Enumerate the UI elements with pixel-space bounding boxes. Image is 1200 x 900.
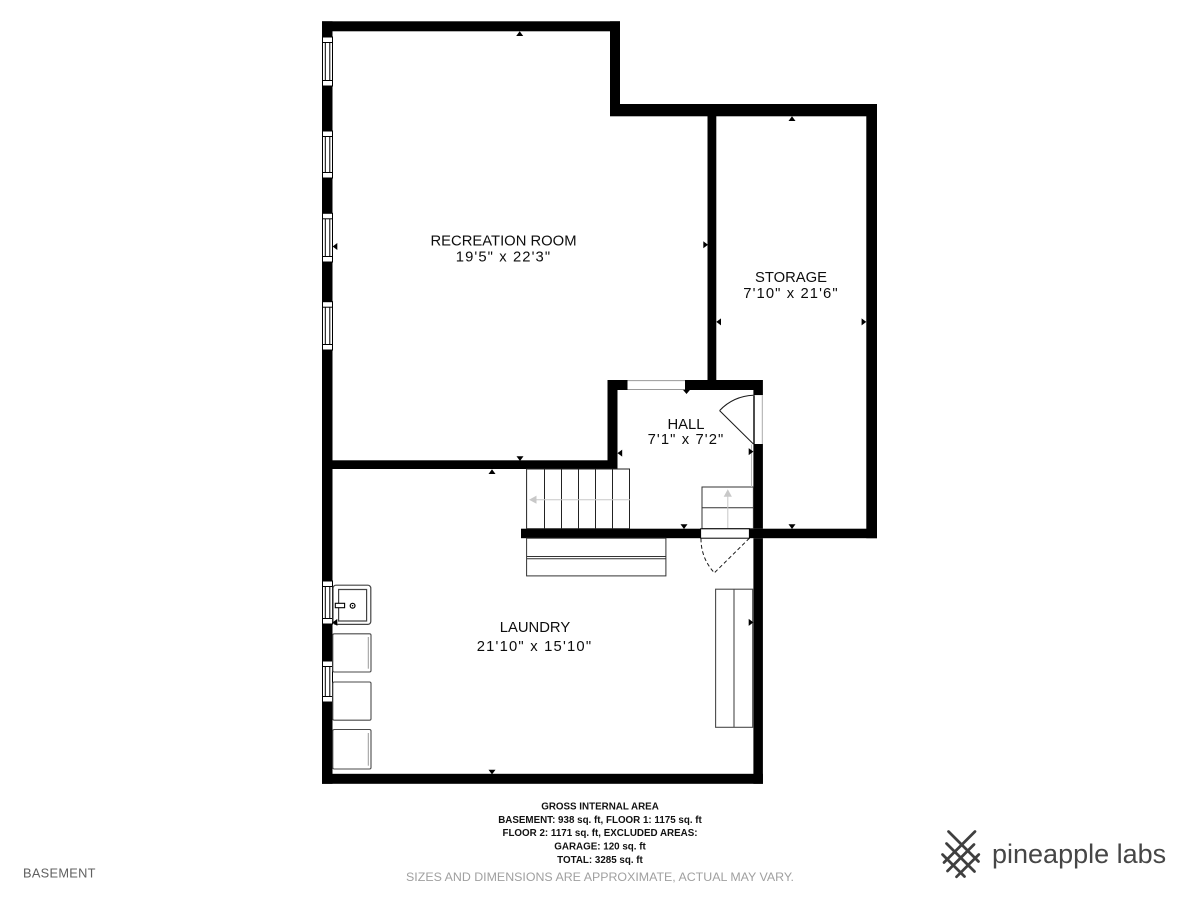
svg-text:GARAGE: 120 sq. ft: GARAGE: 120 sq. ft [554, 842, 646, 853]
svg-text:RECREATION ROOM: RECREATION ROOM [430, 234, 576, 250]
svg-text:21'10" x 15'10": 21'10" x 15'10" [477, 639, 593, 655]
svg-text:STORAGE: STORAGE [755, 270, 827, 286]
svg-text:FLOOR 2: 1171 sq. ft, EXCLUDED: FLOOR 2: 1171 sq. ft, EXCLUDED AREAS: [502, 828, 697, 839]
svg-text:BASEMENT: BASEMENT [23, 866, 96, 881]
svg-text:TOTAL: 3285 sq. ft: TOTAL: 3285 sq. ft [557, 855, 643, 866]
svg-text:7'10" x 21'6": 7'10" x 21'6" [743, 286, 838, 302]
svg-text:pineapple labs: pineapple labs [992, 839, 1166, 869]
svg-text:GROSS INTERNAL AREA: GROSS INTERNAL AREA [541, 801, 659, 812]
svg-text:BASEMENT: 938 sq. ft, FLOOR 1:: BASEMENT: 938 sq. ft, FLOOR 1: 1175 sq. … [498, 815, 702, 826]
svg-text:19'5" x 22'3": 19'5" x 22'3" [456, 250, 551, 266]
svg-text:7'1" x 7'2": 7'1" x 7'2" [648, 432, 725, 448]
svg-text:HALL: HALL [667, 417, 704, 433]
svg-text:LAUNDRY: LAUNDRY [500, 620, 571, 636]
svg-text:SIZES AND DIMENSIONS ARE APPRO: SIZES AND DIMENSIONS ARE APPROXIMATE, AC… [406, 870, 794, 884]
